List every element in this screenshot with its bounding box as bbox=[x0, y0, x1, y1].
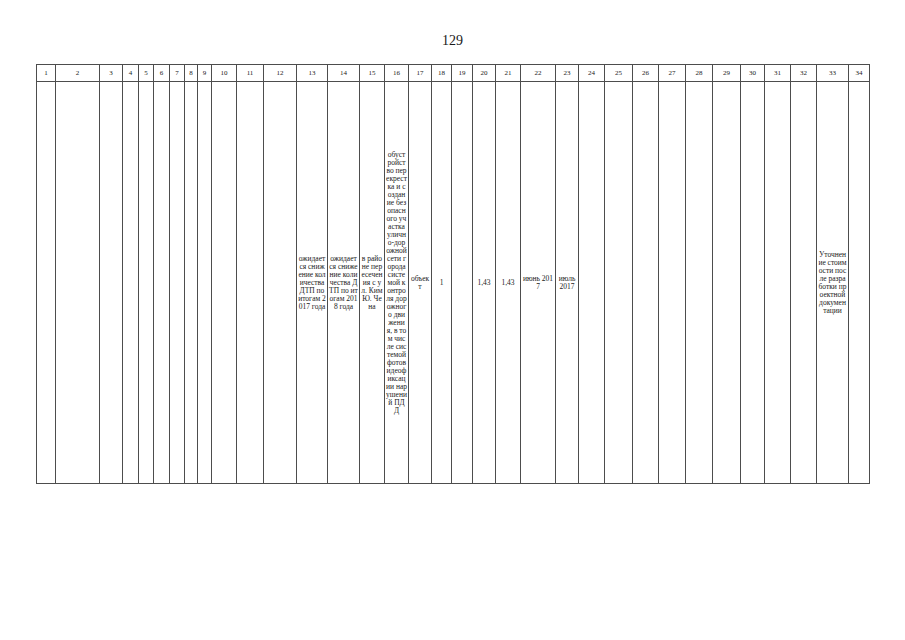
cell-32 bbox=[791, 82, 817, 484]
col-header-30: 30 bbox=[741, 65, 765, 82]
page-number: 129 bbox=[0, 33, 905, 49]
cell-25 bbox=[605, 82, 633, 484]
cell-33: Уточнение стоимости после разработки про… bbox=[817, 82, 849, 484]
document-page: 129 1 2 3 4 5 6 7 8 9 10 11 12 13 bbox=[0, 0, 905, 640]
col-header-18: 18 bbox=[432, 65, 452, 82]
cell-7 bbox=[170, 82, 185, 484]
cell-27 bbox=[659, 82, 686, 484]
col-header-4: 4 bbox=[123, 65, 139, 82]
cell-14: ожидается снижение количества ДТП по ито… bbox=[328, 82, 360, 484]
col-header-2: 2 bbox=[56, 65, 100, 82]
data-table: 1 2 3 4 5 6 7 8 9 10 11 12 13 14 15 16 1… bbox=[36, 64, 870, 484]
col-header-26: 26 bbox=[633, 65, 659, 82]
col-header-29: 29 bbox=[713, 65, 741, 82]
col-header-22: 22 bbox=[521, 65, 556, 82]
cell-11 bbox=[237, 82, 264, 484]
col-header-11: 11 bbox=[237, 65, 264, 82]
cell-10 bbox=[212, 82, 237, 484]
cell-12 bbox=[264, 82, 297, 484]
col-header-9: 9 bbox=[198, 65, 212, 82]
cell-4 bbox=[123, 82, 139, 484]
col-header-31: 31 bbox=[765, 65, 791, 82]
col-header-19: 19 bbox=[452, 65, 473, 82]
col-header-10: 10 bbox=[212, 65, 237, 82]
cell-30 bbox=[741, 82, 765, 484]
col-header-14: 14 bbox=[328, 65, 360, 82]
col-header-33: 33 bbox=[817, 65, 849, 82]
table-body-row: ожидается снижение количества ДТП по ито… bbox=[37, 82, 870, 484]
cell-15: в районе пересечения с ул. Ким Ю. Чена bbox=[360, 82, 385, 484]
cell-24 bbox=[579, 82, 605, 484]
cell-34 bbox=[849, 82, 870, 484]
cell-29 bbox=[713, 82, 741, 484]
col-header-27: 27 bbox=[659, 65, 686, 82]
table-header-row: 1 2 3 4 5 6 7 8 9 10 11 12 13 14 15 16 1… bbox=[37, 65, 870, 82]
col-header-6: 6 bbox=[154, 65, 170, 82]
cell-18: 1 bbox=[432, 82, 452, 484]
cell-2 bbox=[56, 82, 100, 484]
cell-1 bbox=[37, 82, 56, 484]
col-header-32: 32 bbox=[791, 65, 817, 82]
cell-5 bbox=[139, 82, 154, 484]
cell-3 bbox=[100, 82, 123, 484]
col-header-8: 8 bbox=[185, 65, 198, 82]
col-header-15: 15 bbox=[360, 65, 385, 82]
cell-19 bbox=[452, 82, 473, 484]
cell-13: ожидается снижение количества ДТП по ито… bbox=[297, 82, 328, 484]
cell-26 bbox=[633, 82, 659, 484]
cell-28 bbox=[686, 82, 713, 484]
col-header-17: 17 bbox=[409, 65, 432, 82]
col-header-1: 1 bbox=[37, 65, 56, 82]
col-header-23: 23 bbox=[556, 65, 579, 82]
col-header-5: 5 bbox=[139, 65, 154, 82]
col-header-25: 25 bbox=[605, 65, 633, 82]
cell-9 bbox=[198, 82, 212, 484]
cell-20: 1,43 bbox=[473, 82, 496, 484]
col-header-24: 24 bbox=[579, 65, 605, 82]
cell-17: объект bbox=[409, 82, 432, 484]
col-header-28: 28 bbox=[686, 65, 713, 82]
cell-21: 1,43 bbox=[496, 82, 521, 484]
cell-31 bbox=[765, 82, 791, 484]
cell-22: июнь 2017 bbox=[521, 82, 556, 484]
col-header-34: 34 bbox=[849, 65, 870, 82]
col-header-16: 16 bbox=[385, 65, 409, 82]
col-header-12: 12 bbox=[264, 65, 297, 82]
col-header-13: 13 bbox=[297, 65, 328, 82]
col-header-3: 3 bbox=[100, 65, 123, 82]
col-header-20: 20 bbox=[473, 65, 496, 82]
col-header-7: 7 bbox=[170, 65, 185, 82]
cell-16: обустройство перекрестка и создание безо… bbox=[385, 82, 409, 484]
cell-23: июль 2017 bbox=[556, 82, 579, 484]
col-header-21: 21 bbox=[496, 65, 521, 82]
cell-6 bbox=[154, 82, 170, 484]
cell-8 bbox=[185, 82, 198, 484]
